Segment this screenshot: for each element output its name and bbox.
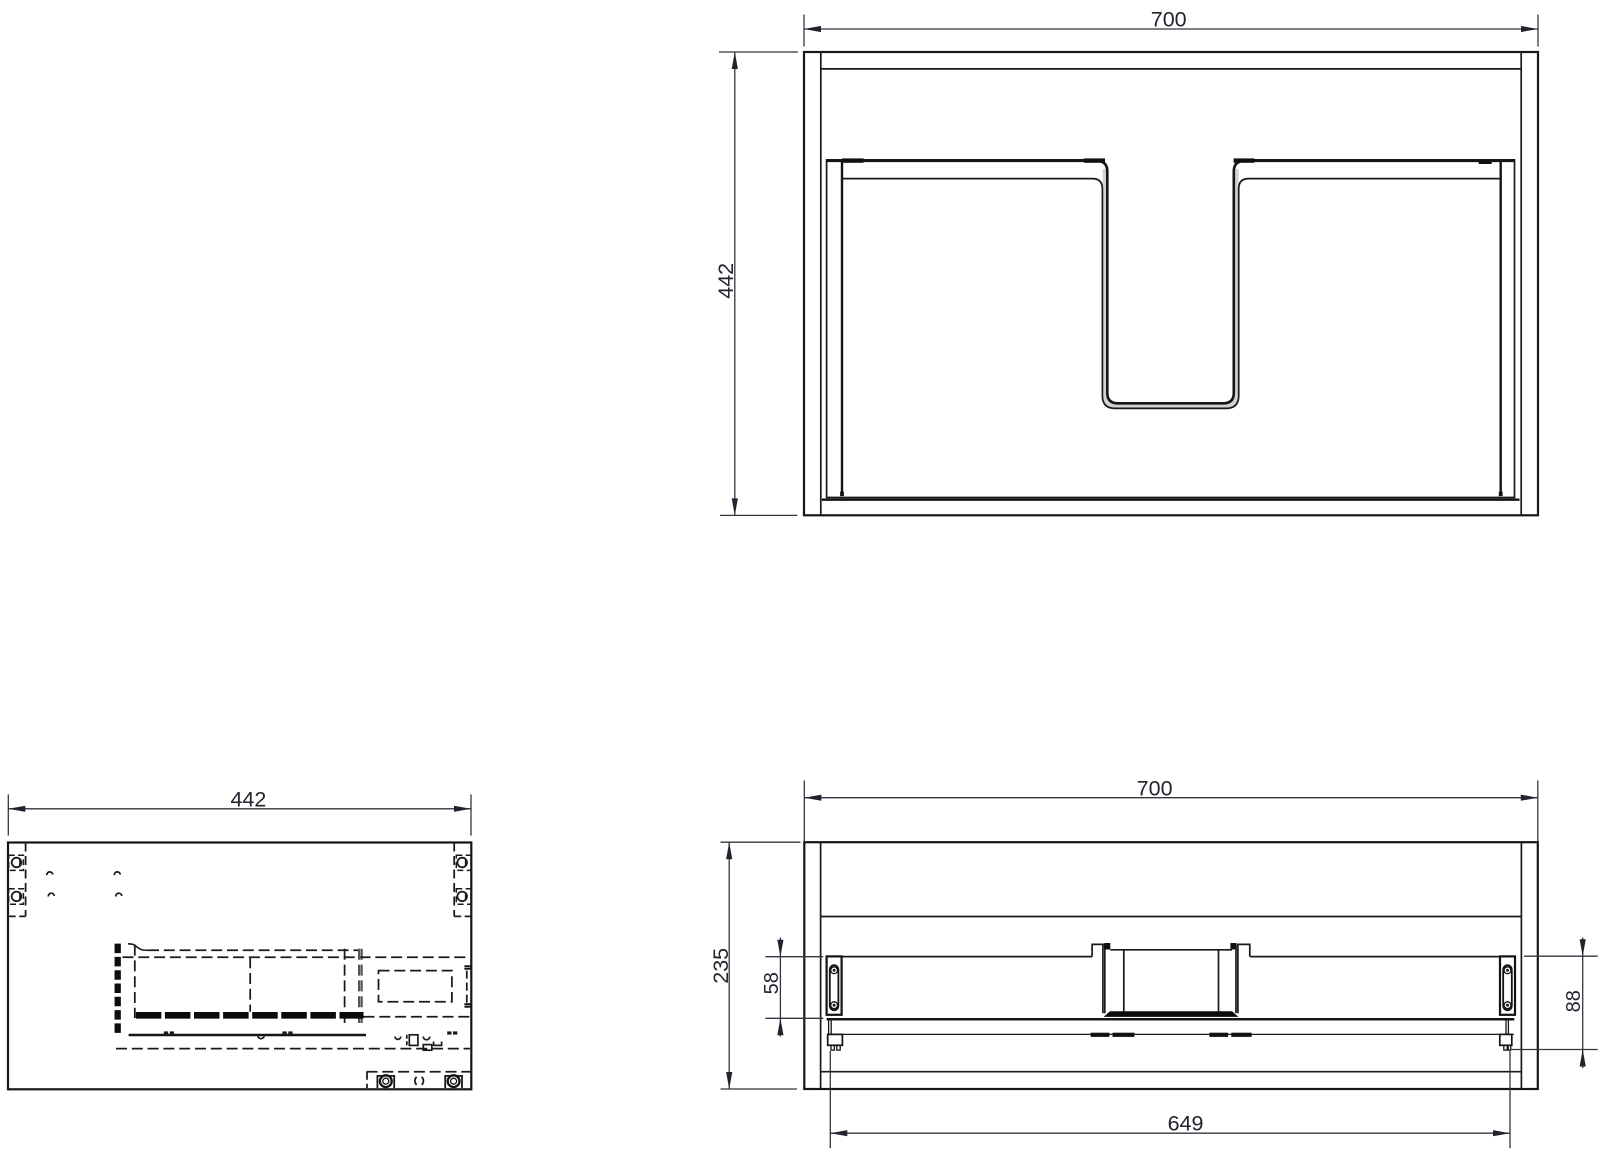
svg-text:88: 88 <box>1563 990 1585 1012</box>
svg-text:235: 235 <box>709 948 733 984</box>
svg-text:700: 700 <box>1137 776 1173 800</box>
svg-text:442: 442 <box>230 787 266 811</box>
svg-text:649: 649 <box>1168 1112 1204 1136</box>
svg-text:442: 442 <box>714 263 738 299</box>
svg-text:58: 58 <box>761 972 783 994</box>
svg-text:700: 700 <box>1151 8 1187 32</box>
